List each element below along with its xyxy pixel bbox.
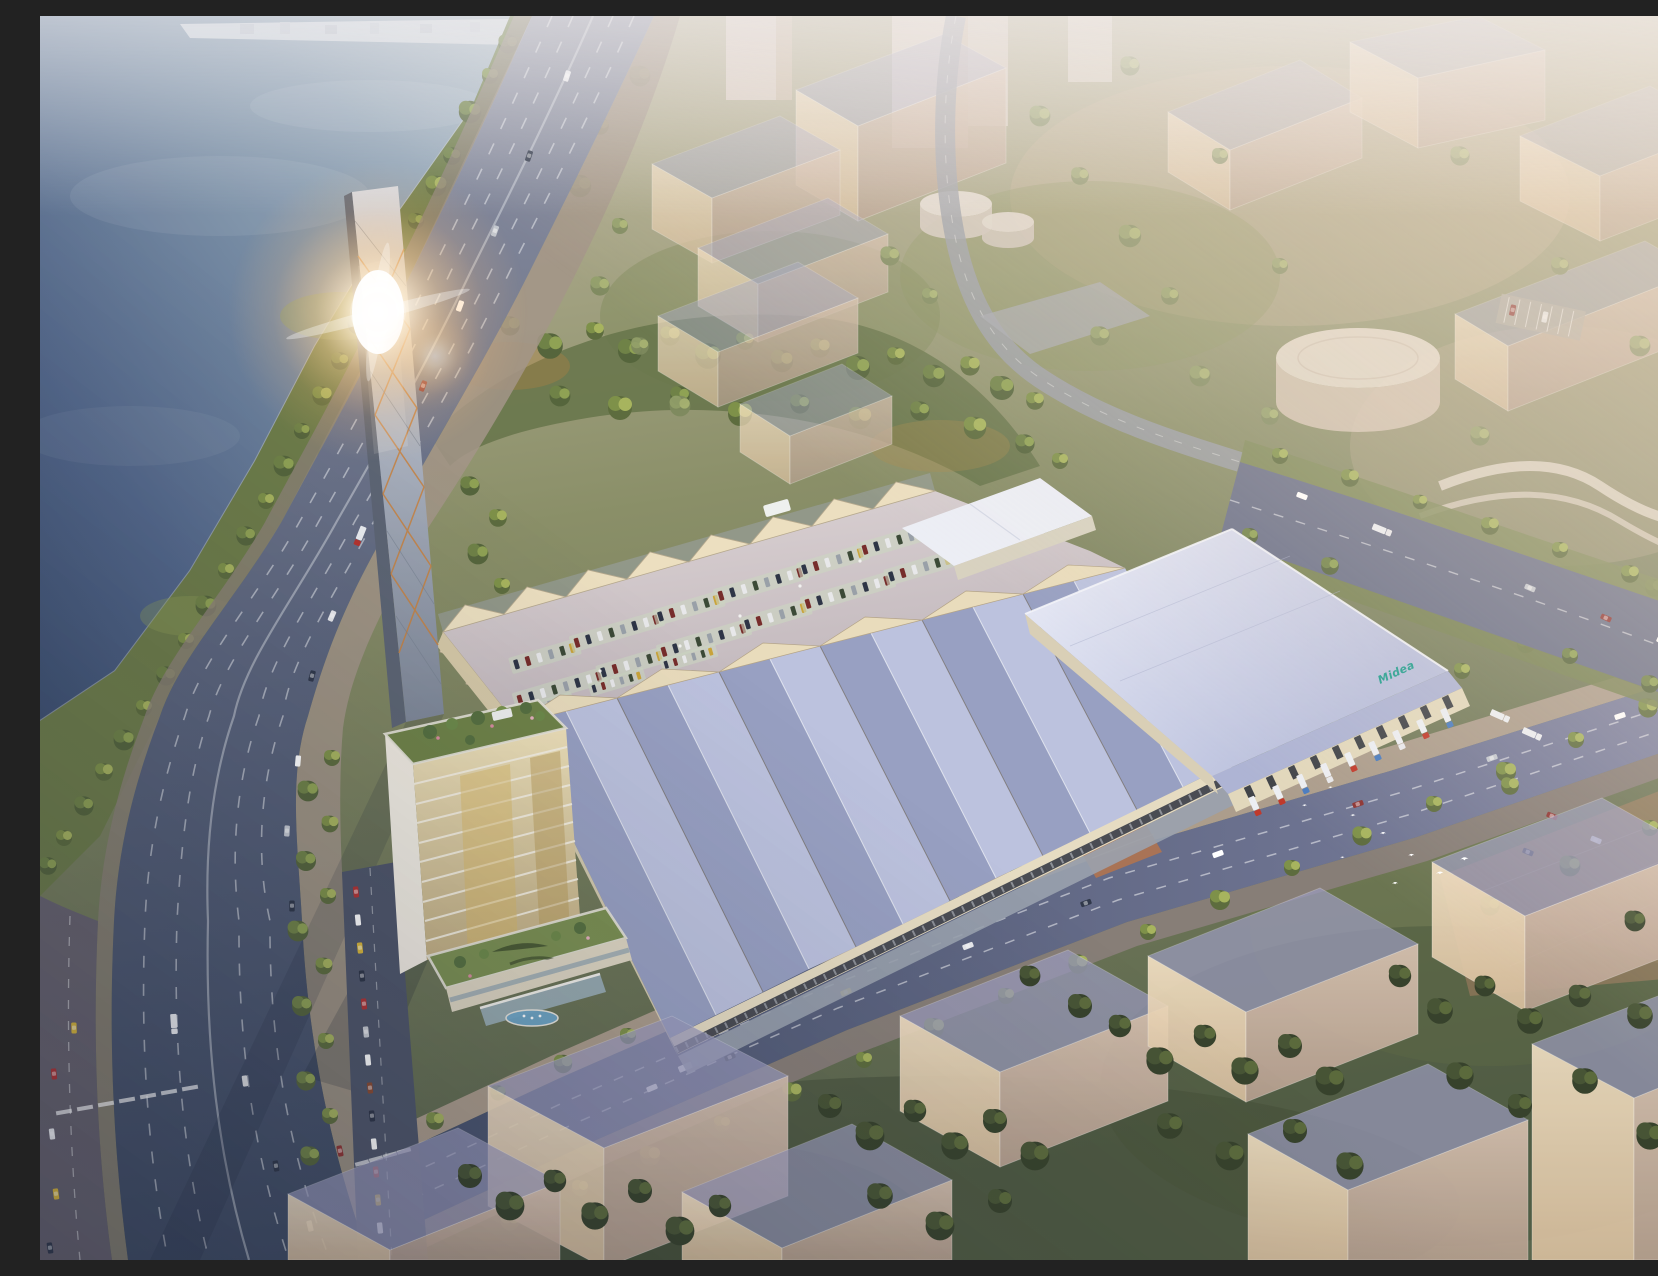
aerial-render: Aerial rendering of an industrial campus… xyxy=(40,16,1658,1260)
render-canvas: Aerial rendering of an industrial campus… xyxy=(40,16,1658,1260)
top-haze-band xyxy=(40,16,1658,216)
sun-flare xyxy=(228,162,528,462)
